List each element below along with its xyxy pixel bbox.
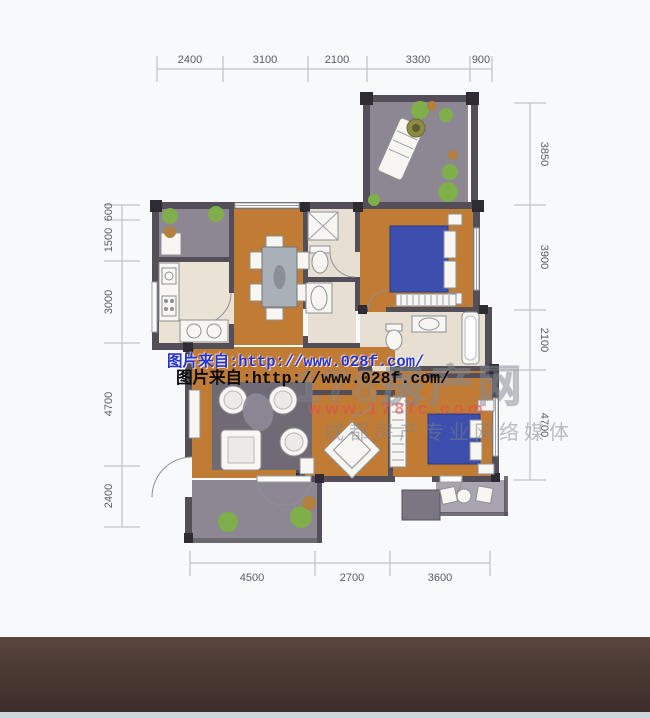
dim-label: 2400 [178,54,202,66]
bottom-edge-strip [0,712,650,718]
dim-label: 4700 [538,413,550,437]
wardrobe-icon [396,294,456,306]
dim-label: 2100 [538,328,550,352]
floorplan-svg: 2400 3100 2100 3300 900 600 1500 3000 47… [0,0,650,637]
dim-label: 2700 [340,572,364,584]
dimension-bottom: 4500 2700 3600 [190,551,490,584]
balcony-table-icon [457,489,471,503]
dim-label: 900 [472,54,490,66]
tv-cabinet-icon [189,390,200,438]
nightstand-icon [448,214,462,225]
toilet-icon [312,251,328,273]
stove-icon [162,296,176,316]
sink-icon [311,286,327,310]
dimension-top: 2400 3100 2100 3300 900 [157,54,492,82]
dim-label: 3850 [538,142,550,166]
dim-label: 3100 [253,54,277,66]
dim-label: 3900 [538,245,550,269]
scanned-floorplan-page: 2400 3100 2100 3300 900 600 1500 3000 47… [0,0,650,718]
kitchen-window [152,282,157,332]
dim-label: 3000 [103,290,115,314]
dimension-left: 600 1500 3000 4700 2400 [103,203,140,527]
footer-bar: F 自然原界 水上视界 Naturally conserved and buil… [0,637,650,712]
floorplan-area: 2400 3100 2100 3300 900 600 1500 3000 47… [0,0,650,637]
dim-label: 600 [103,203,115,221]
dim-label: 3600 [428,572,452,584]
master-bed-icon [390,226,448,292]
wardrobe-icon [390,397,406,467]
balcony-chair-icon [440,486,458,504]
toilet-icon [386,330,402,350]
service-block [402,490,440,520]
dim-label: 4700 [103,392,115,416]
dim-label: 1500 [103,228,115,252]
dim-label: 2100 [325,54,349,66]
dimension-right: 3850 3900 2100 4700 [514,103,550,480]
plant-icon [411,101,429,119]
sink-icon [419,318,439,330]
dim-label: 2400 [103,484,115,508]
dim-label: 4500 [240,572,264,584]
dim-label: 3300 [406,54,430,66]
